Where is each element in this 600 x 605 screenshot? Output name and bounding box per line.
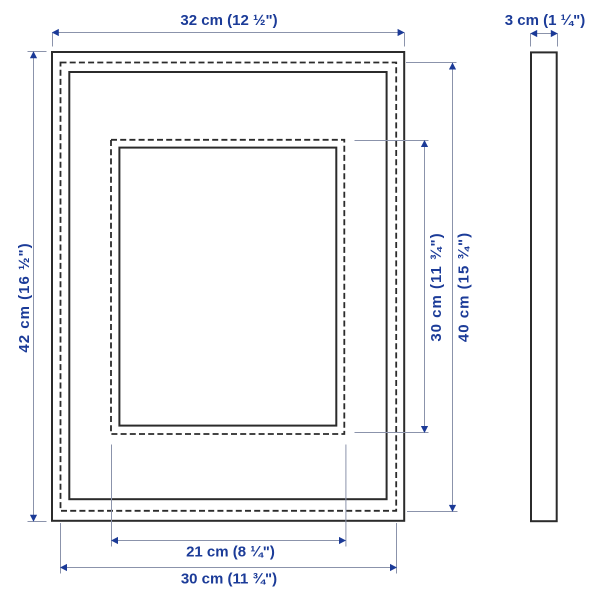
svg-text:32 cm (12 ½"): 32 cm (12 ½") <box>180 12 277 29</box>
svg-text:21 cm (8 ¼"): 21 cm (8 ¼") <box>186 544 275 561</box>
svg-text:40 cm (15 ¾"): 40 cm (15 ¾") <box>456 232 473 342</box>
svg-text:42 cm (16 ½"): 42 cm (16 ½") <box>16 242 33 352</box>
svg-text:30 cm (11 ¾"): 30 cm (11 ¾") <box>428 232 445 341</box>
svg-text:3 cm (1 ¼"): 3 cm (1 ¼") <box>505 12 585 29</box>
svg-text:30 cm (11 ¾"): 30 cm (11 ¾") <box>181 571 277 588</box>
